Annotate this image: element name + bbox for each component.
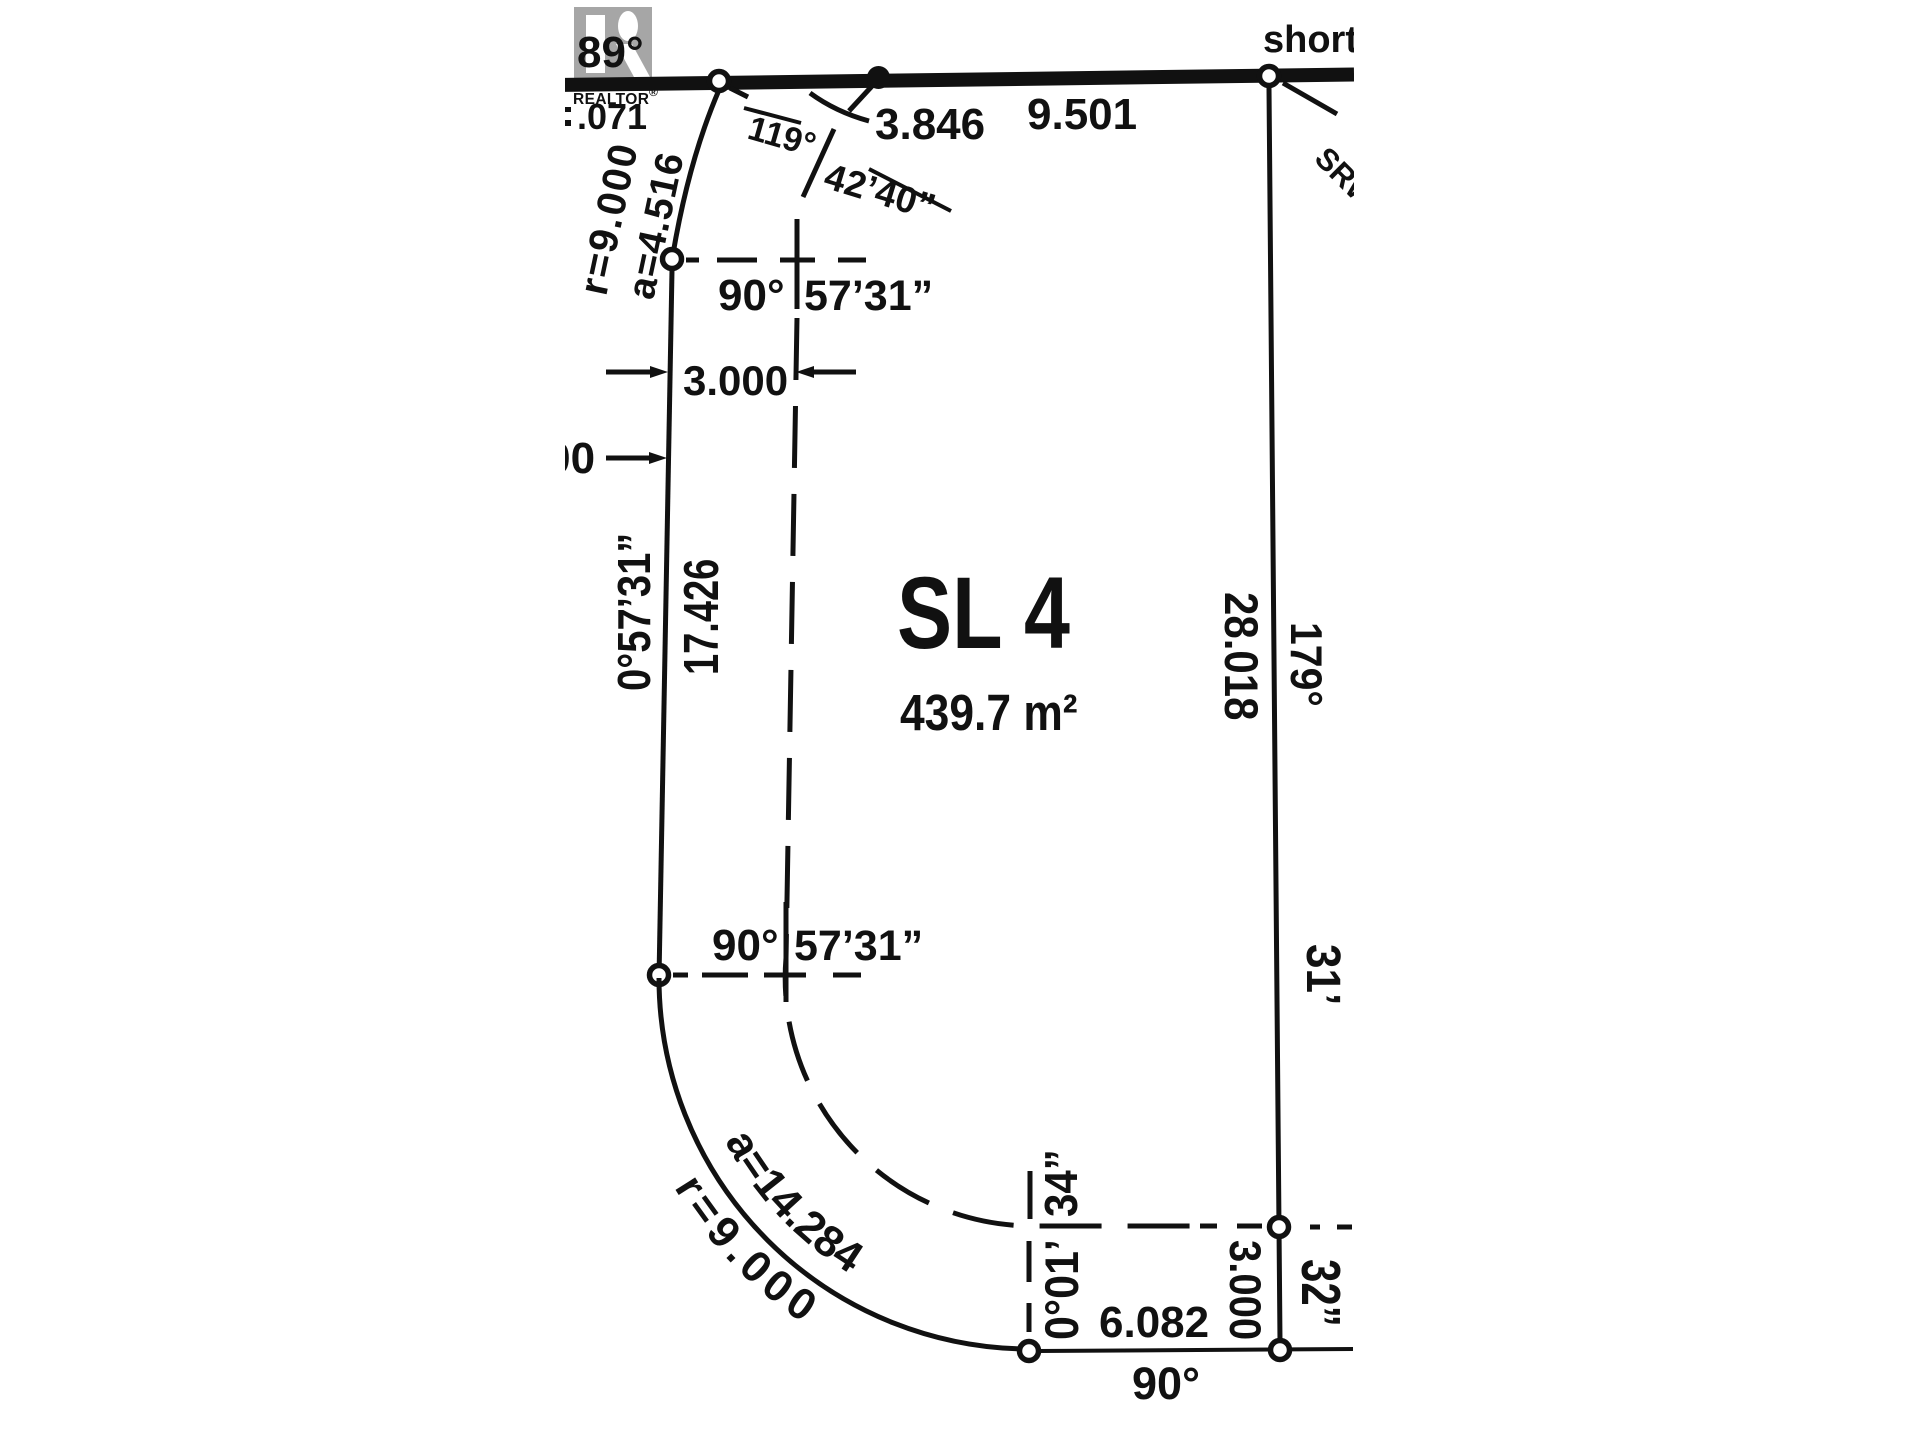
svg-text:439.7 m²: 439.7 m² [900, 685, 1078, 742]
svg-text:57’31”: 57’31” [804, 272, 933, 320]
svg-text:3.846: 3.846 [875, 100, 985, 149]
svg-text:9.501: 9.501 [1027, 90, 1137, 139]
svg-text:179°: 179° [1281, 622, 1331, 707]
svg-text:3.000: 3.000 [1221, 1240, 1271, 1340]
svg-text:32”: 32” [1290, 1259, 1351, 1327]
svg-text:90°: 90° [718, 271, 785, 320]
svg-text:0°01’: 0°01’ [1035, 1239, 1088, 1340]
svg-text:0°57’31”: 0°57’31” [609, 533, 660, 691]
svg-text:90°: 90° [712, 921, 779, 970]
svg-text:17.426: 17.426 [674, 559, 729, 675]
svg-text:90°: 90° [1132, 1358, 1200, 1409]
svg-text:SL 4: SL 4 [897, 556, 1070, 670]
svg-text:34”: 34” [1036, 1149, 1087, 1217]
svg-text:3.000: 3.000 [683, 357, 788, 404]
svg-text:31’: 31’ [1297, 944, 1351, 1005]
svg-text:.071: .071 [577, 96, 647, 137]
svg-text:57’31”: 57’31” [794, 922, 923, 970]
svg-text:89°: 89° [577, 28, 644, 77]
svg-text:6.082: 6.082 [1099, 1298, 1209, 1347]
svg-text:28.018: 28.018 [1214, 592, 1266, 720]
